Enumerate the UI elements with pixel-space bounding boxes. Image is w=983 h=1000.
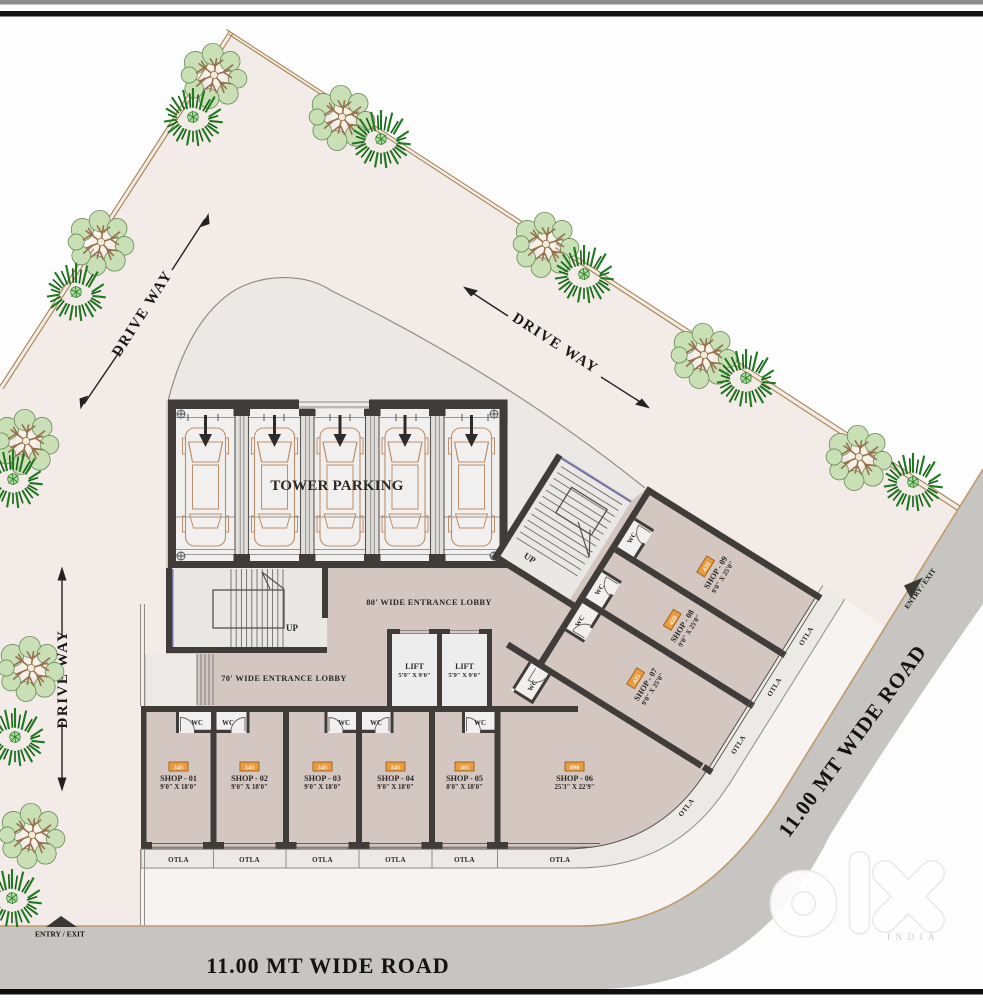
- svg-text:OTLA: OTLA: [312, 856, 333, 864]
- svg-text:WC: WC: [338, 720, 350, 727]
- svg-text:OTLA: OTLA: [385, 856, 406, 864]
- svg-text:25'3" X 22'9": 25'3" X 22'9": [554, 784, 594, 791]
- svg-text:SHOP - 01: SHOP - 01: [160, 774, 197, 783]
- svg-text:OTLA: OTLA: [454, 856, 475, 864]
- svg-text:345: 345: [245, 765, 256, 772]
- svg-text:9'0" X 18'0": 9'0" X 18'0": [231, 784, 268, 791]
- svg-text:5'9" X 9'0": 5'9" X 9'0": [448, 672, 480, 679]
- svg-text:WC: WC: [370, 720, 382, 727]
- svg-text:305: 305: [460, 765, 471, 772]
- svg-text:INDIA: INDIA: [887, 932, 940, 942]
- svg-text:9'0" X 18'0": 9'0" X 18'0": [304, 784, 341, 791]
- svg-text:345: 345: [391, 765, 402, 772]
- svg-text:345: 345: [174, 765, 185, 772]
- svg-text:SHOP - 03: SHOP - 03: [304, 774, 341, 783]
- svg-text:WC: WC: [222, 720, 234, 727]
- svg-text:LIFT: LIFT: [455, 662, 474, 671]
- svg-text:80' WIDE ENTRANCE LOBBY: 80' WIDE ENTRANCE LOBBY: [366, 598, 492, 607]
- svg-text:ENTRY / EXIT: ENTRY / EXIT: [35, 930, 85, 939]
- svg-text:WC: WC: [191, 720, 203, 727]
- svg-text:LIFT: LIFT: [405, 662, 424, 671]
- svg-text:9'0" X 18'0": 9'0" X 18'0": [160, 784, 197, 791]
- svg-text:TOWER PARKING: TOWER PARKING: [270, 478, 403, 494]
- svg-text:11.00 MT WIDE ROAD: 11.00 MT WIDE ROAD: [206, 953, 449, 978]
- svg-text:SHOP - 05: SHOP - 05: [446, 774, 483, 783]
- svg-text:OTLA: OTLA: [168, 856, 189, 864]
- svg-text:70' WIDE ENTRANCE LOBBY: 70' WIDE ENTRANCE LOBBY: [221, 674, 347, 683]
- svg-text:OTLA: OTLA: [239, 856, 260, 864]
- svg-text:OTLA: OTLA: [550, 856, 571, 864]
- svg-text:8'0" X 18'0": 8'0" X 18'0": [446, 784, 483, 791]
- svg-text:SHOP - 06: SHOP - 06: [556, 774, 593, 783]
- svg-text:SHOP - 02: SHOP - 02: [231, 774, 268, 783]
- svg-text:9'0" X 18'0": 9'0" X 18'0": [377, 784, 414, 791]
- svg-text:5'9" X 9'0": 5'9" X 9'0": [398, 672, 430, 679]
- svg-text:SHOP - 04: SHOP - 04: [377, 774, 414, 783]
- svg-text:WC: WC: [474, 720, 486, 727]
- svg-text:345: 345: [318, 765, 329, 772]
- svg-text:UP: UP: [286, 623, 298, 633]
- svg-text:890: 890: [570, 765, 580, 772]
